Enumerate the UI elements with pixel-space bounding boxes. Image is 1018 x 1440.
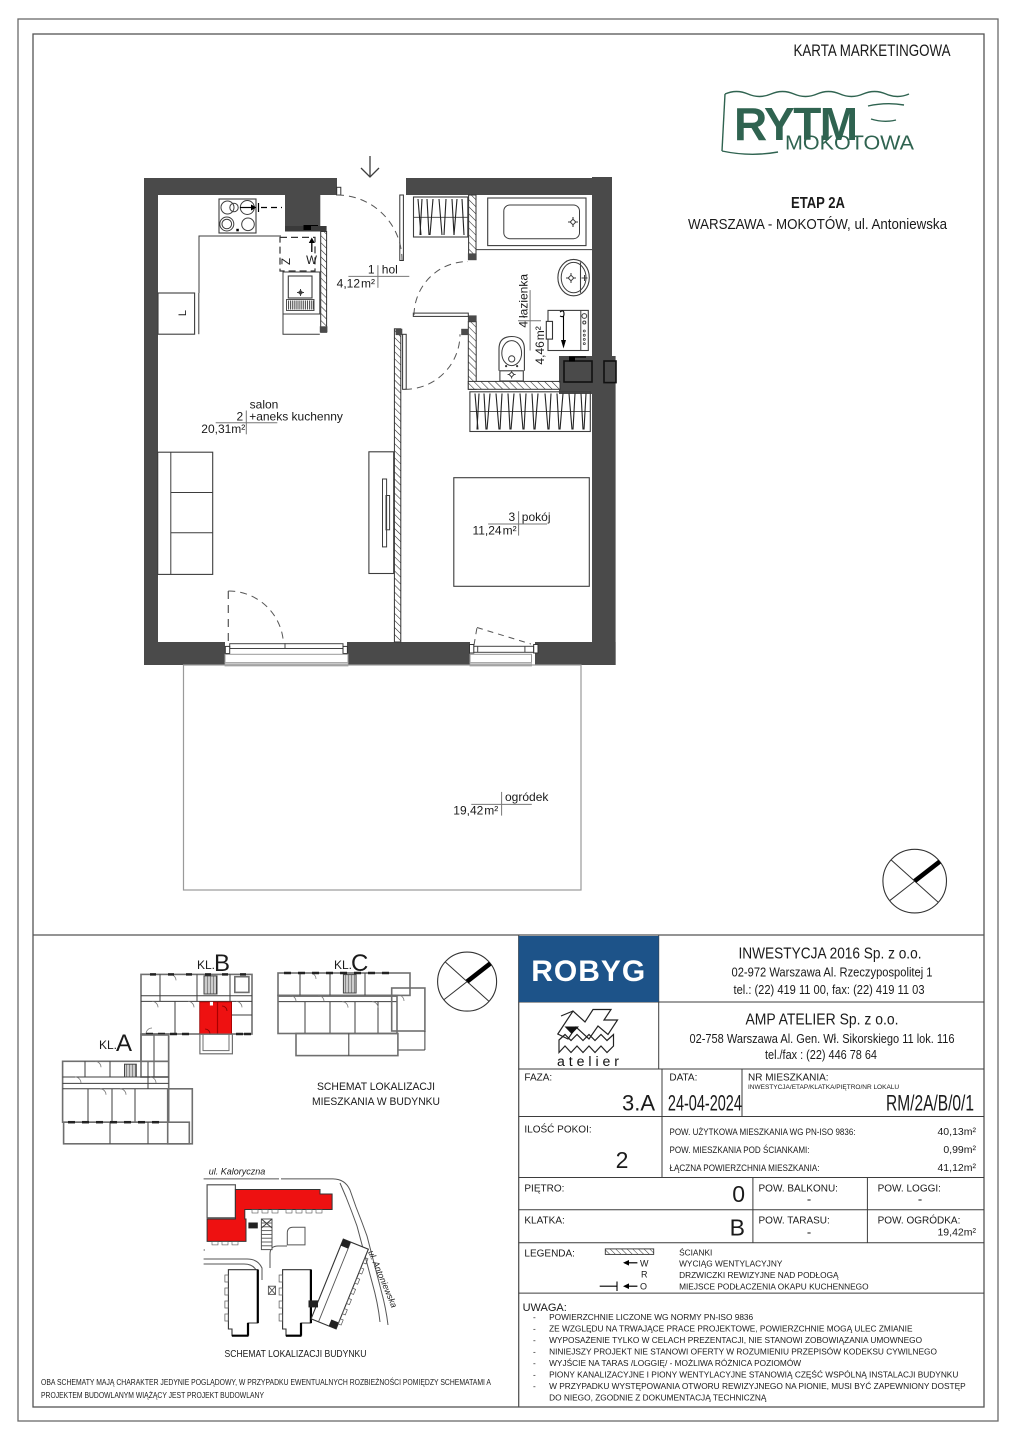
svg-text:B: B (214, 950, 230, 977)
svg-text:-: - (533, 1335, 536, 1345)
svg-text:02-972 Warszawa Al. Rzeczyposp: 02-972 Warszawa Al. Rzeczypospolitej 1 (732, 964, 933, 979)
svg-text:FAZA:: FAZA: (524, 1073, 552, 1084)
svg-text:ZE WZGLĘDU NA TRWAJĄCE PRACE P: ZE WZGLĘDU NA TRWAJĄCE PRACE PROJEKTOWE,… (549, 1324, 913, 1334)
svg-text:NINIEJSZY PROJEKT NIE STANOWI: NINIEJSZY PROJEKT NIE STANOWI OFERTY W R… (549, 1347, 937, 1357)
svg-text:0,99m²: 0,99m² (943, 1144, 976, 1156)
svg-text:W: W (306, 255, 317, 267)
svg-text:ILOŚĆ POKOI:: ILOŚĆ POKOI: (524, 1123, 591, 1136)
svg-text:R: R (641, 1270, 648, 1280)
svg-text:Z: Z (281, 258, 293, 265)
svg-text:ŁĄCZNA POWIERZCHNIA MIESZKANIA: ŁĄCZNA POWIERZCHNIA MIESZKANIA: (670, 1163, 820, 1173)
svg-text:KARTA MARKETINGOWA: KARTA MARKETINGOWA (794, 42, 951, 60)
svg-text:2: 2 (616, 1147, 629, 1173)
svg-text:MIEJSCE PODŁACZENIA OKAPU KUCH: MIEJSCE PODŁACZENIA OKAPU KUCHENNEGO (679, 1282, 869, 1292)
svg-text:O: O (640, 1281, 647, 1291)
svg-text:hol: hol (382, 263, 398, 277)
svg-text:+aneks kuchenny: +aneks kuchenny (249, 409, 343, 423)
svg-text:-: - (807, 1192, 811, 1207)
svg-text:PROJEKTEM BUDOWLANYM WIĄŻĄCY J: PROJEKTEM BUDOWLANYM WIĄŻĄCY JEST PROJEK… (41, 1390, 264, 1400)
svg-text:W PRZYPADKU WYSTĘPOWANIA OTWOR: W PRZYPADKU WYSTĘPOWANIA OTWORU REWIZYJN… (549, 1381, 966, 1391)
svg-text:-: - (533, 1358, 536, 1368)
svg-text:W: W (640, 1258, 649, 1268)
svg-text:a t e l i e r: a t e l i e r (557, 1054, 620, 1069)
svg-text:L: L (177, 310, 189, 316)
svg-text:1: 1 (368, 263, 375, 277)
svg-text:pokój: pokój (522, 510, 551, 524)
svg-text:POW. BALKONU:: POW. BALKONU: (759, 1184, 838, 1195)
svg-text:4,46 m²: 4,46 m² (533, 326, 547, 364)
svg-text:AMP ATELIER Sp. z o.o.: AMP ATELIER Sp. z o.o. (746, 1012, 899, 1029)
svg-text:DATA:: DATA: (669, 1073, 697, 1084)
svg-text:MIESZKANIA W BUDYNKU: MIESZKANIA W BUDYNKU (312, 1096, 440, 1108)
svg-text:19,42 m²: 19,42 m² (453, 804, 498, 818)
svg-text:PIĘTRO:: PIĘTRO: (524, 1184, 564, 1195)
svg-text:DO NIEGO, ZGODNIE Z DOKUMENTAC: DO NIEGO, ZGODNIE Z DOKUMENTACJĄ TECHNIC… (549, 1392, 767, 1402)
svg-text:4: 4 (517, 321, 531, 328)
svg-text:SCHEMAT LOKALIZACJI: SCHEMAT LOKALIZACJI (317, 1081, 435, 1093)
svg-text:-: - (533, 1381, 536, 1391)
svg-text:A: A (116, 1030, 132, 1057)
svg-text:ul. Kaloryczna: ul. Kaloryczna (209, 1167, 266, 1177)
svg-text:NR MIESZKANIA:: NR MIESZKANIA: (748, 1073, 829, 1084)
svg-text:3: 3 (509, 510, 516, 524)
svg-text:ogródek: ogródek (505, 790, 549, 804)
svg-text:-: - (533, 1347, 536, 1357)
svg-text:łazienka: łazienka (517, 274, 531, 318)
svg-text:KL.: KL. (334, 958, 352, 972)
svg-text:LEGENDA:: LEGENDA: (524, 1249, 575, 1260)
svg-text:3.A: 3.A (622, 1091, 655, 1116)
svg-text:0: 0 (732, 1181, 745, 1207)
svg-text:KLATKA:: KLATKA: (524, 1216, 564, 1227)
svg-text:4,12 m²: 4,12 m² (337, 276, 375, 290)
svg-text:POW. UŻYTKOWA MIESZKANIA WG PN: POW. UŻYTKOWA MIESZKANIA WG PN-ISO 9836: (670, 1127, 856, 1137)
svg-text:-: - (533, 1324, 536, 1334)
svg-text:POW. OGRÓDKA:: POW. OGRÓDKA: (878, 1214, 961, 1227)
svg-text:DRZWICZKI REWIZYJNE NAD PODŁOG: DRZWICZKI REWIZYJNE NAD PODŁOGĄ (679, 1270, 839, 1280)
svg-text:WYPOSAŻENIE TYLKO W CELACH PRE: WYPOSAŻENIE TYLKO W CELACH PREZENTACJI, … (549, 1335, 922, 1345)
svg-text:RM/2A/B/0/1: RM/2A/B/0/1 (886, 1091, 974, 1116)
svg-text:WYCIĄG WENTYLACYJNY: WYCIĄG WENTYLACYJNY (679, 1259, 783, 1269)
svg-text:SCHEMAT LOKALIZACJI BUDYNKU: SCHEMAT LOKALIZACJI BUDYNKU (225, 1348, 367, 1360)
svg-text:40,13m²: 40,13m² (937, 1126, 976, 1138)
svg-text:B: B (730, 1215, 745, 1241)
svg-text:ŚCIANKI: ŚCIANKI (679, 1247, 712, 1258)
svg-text:02-758 Warszawa Al. Gen. Wł. S: 02-758 Warszawa Al. Gen. Wł. Sikorskiego… (690, 1031, 955, 1046)
svg-text:WYJŚCIE NA TARAS /LOGGIĘ/ - MO: WYJŚCIE NA TARAS /LOGGIĘ/ - MOŻLIWA RÓŻN… (549, 1357, 801, 1368)
svg-text:-: - (533, 1312, 536, 1322)
svg-text:KL.: KL. (197, 958, 215, 972)
svg-text:11,24 m²: 11,24 m² (472, 524, 516, 538)
svg-text:-: - (918, 1192, 922, 1207)
svg-text:INWESTYCJA 2016 Sp. z o.o.: INWESTYCJA 2016 Sp. z o.o. (739, 946, 922, 963)
svg-text:WARSZAWA - MOKOTÓW, ul. Antoni: WARSZAWA - MOKOTÓW, ul. Antoniewska (688, 216, 948, 233)
svg-text:2: 2 (237, 409, 244, 423)
svg-text:INWESTYCJA/ETAP/KLATKA/PIĘTRO/: INWESTYCJA/ETAP/KLATKA/PIĘTRO/NR LOKALU (748, 1084, 899, 1091)
svg-text:ROBYG: ROBYG (531, 955, 646, 988)
svg-text:POWIERZCHNIE LICZONE WG NORMY: POWIERZCHNIE LICZONE WG NORMY PN-ISO 983… (549, 1312, 753, 1322)
svg-text:20,31m²: 20,31m² (201, 422, 245, 436)
svg-text:PIONY KANALIZACYJNE I PIONY WE: PIONY KANALIZACYJNE I PIONY WENTYLACYJNE… (549, 1368, 958, 1379)
svg-text:24-04-2024: 24-04-2024 (668, 1091, 742, 1116)
svg-text:-: - (807, 1225, 811, 1240)
svg-text:19,42m²: 19,42m² (937, 1227, 976, 1239)
svg-text:POW. TARASU:: POW. TARASU: (759, 1216, 830, 1227)
svg-text:tel.: (22) 419 11 00, fax: (22: tel.: (22) 419 11 00, fax: (22) 419 11 0… (734, 982, 925, 997)
svg-text:ETAP 2A: ETAP 2A (791, 195, 845, 212)
svg-text:tel./fax : (22) 446 78 64: tel./fax : (22) 446 78 64 (765, 1047, 877, 1062)
svg-text:41,12m²: 41,12m² (937, 1162, 976, 1174)
svg-text:KL.: KL. (99, 1038, 117, 1052)
svg-text:POW. MIESZKANIA POD ŚCIANKAMI:: POW. MIESZKANIA POD ŚCIANKAMI: (670, 1144, 810, 1155)
svg-text:POW. LOGGI:: POW. LOGGI: (878, 1184, 941, 1195)
svg-text:OBA SCHEMATY MAJĄ CHARAKTER JE: OBA SCHEMATY MAJĄ CHARAKTER JEDYNIE POGL… (41, 1376, 491, 1387)
svg-text:-: - (533, 1369, 536, 1379)
svg-text:MOKOTOWA: MOKOTOWA (785, 133, 915, 155)
